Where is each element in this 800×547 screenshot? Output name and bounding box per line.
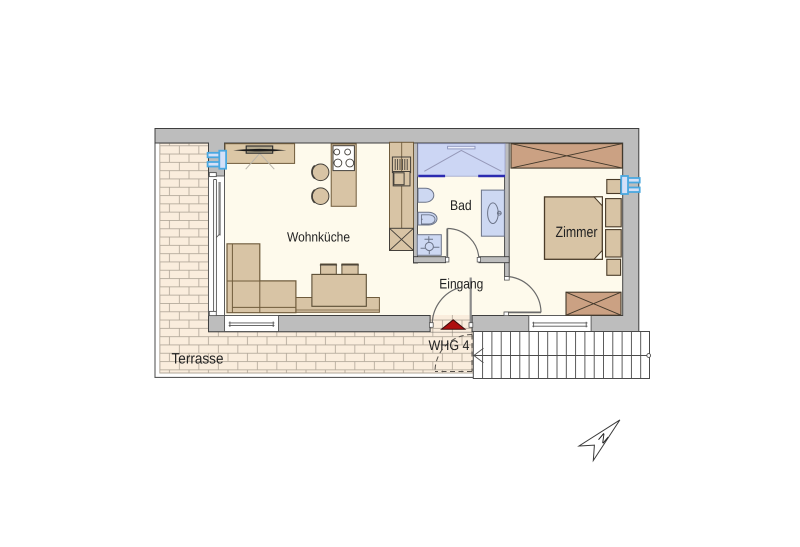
svg-text:Terrasse: Terrasse [172, 350, 224, 367]
svg-text:Bad: Bad [450, 197, 472, 213]
svg-text:WHG 4: WHG 4 [429, 337, 470, 353]
svg-text:Eingang: Eingang [439, 276, 483, 292]
svg-text:Wohnküche: Wohnküche [287, 230, 350, 245]
svg-text:Zimmer: Zimmer [556, 224, 598, 241]
